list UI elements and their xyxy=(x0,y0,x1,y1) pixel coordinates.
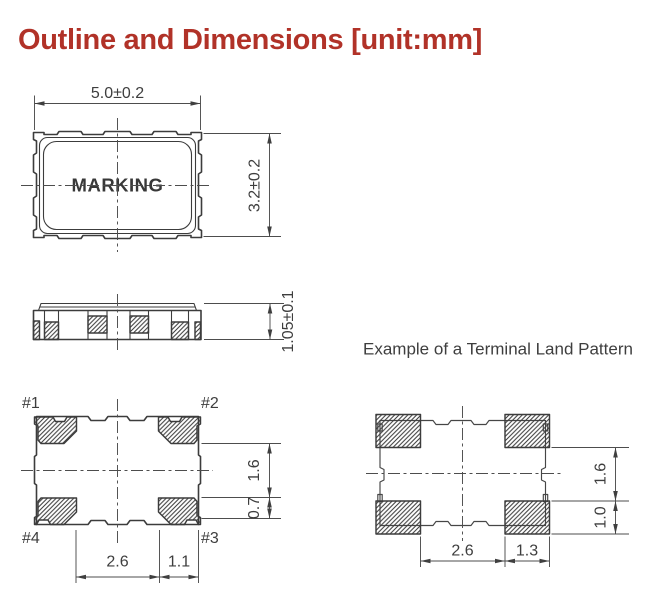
arrowhead xyxy=(613,524,618,534)
dimension-label-land-width: 1.3 xyxy=(516,543,538,560)
dimension-label-width: 5.0±0.2 xyxy=(91,85,144,102)
arrowhead xyxy=(421,559,431,564)
land-pad-3 xyxy=(505,501,550,534)
arrowhead xyxy=(150,575,160,580)
arrowhead xyxy=(613,491,618,501)
dimension-pad-pitch: 2.6 1.1 xyxy=(76,530,199,583)
arrowhead xyxy=(268,330,273,340)
pad-4 xyxy=(35,498,77,525)
arrowhead xyxy=(35,101,45,106)
arrowhead xyxy=(613,448,618,458)
dimension-label-pad-width: 1.1 xyxy=(168,554,190,571)
terminal-pad xyxy=(34,321,40,340)
arrowhead xyxy=(267,227,272,237)
pin1-label: #1 xyxy=(22,395,40,412)
arrowhead xyxy=(540,559,550,564)
dimension-thickness: 1.05±0.1 xyxy=(204,290,297,352)
terminal-pad xyxy=(88,316,107,333)
pin3-label: #3 xyxy=(201,530,219,547)
arrowhead xyxy=(613,501,618,511)
pad-2 xyxy=(159,417,201,444)
arrowhead xyxy=(76,575,86,580)
terminal-pad xyxy=(130,316,149,333)
arrowhead xyxy=(495,559,505,564)
land-pad-1 xyxy=(376,415,421,448)
pin4-label: #4 xyxy=(22,530,40,547)
arrowhead xyxy=(268,304,273,314)
pin2-label: #2 xyxy=(201,395,219,412)
land-pattern-caption: Example of a Terminal Land Pattern xyxy=(363,340,633,359)
land-pad-2 xyxy=(505,415,550,448)
dimension-label-pad-height: 0.7 xyxy=(246,497,263,519)
arrowhead xyxy=(267,498,272,508)
dimension-label-height: 3.2±0.2 xyxy=(247,159,264,212)
dimension-label-pitch: 2.6 xyxy=(106,554,128,571)
terminal-pad xyxy=(172,322,189,340)
outline-drawing: 5.0±0.2 MARKING 3.2±0.2 xyxy=(0,0,661,603)
arrowhead xyxy=(191,101,201,106)
bottom-view: #1 #2 #4 #3 1.6 0.7 xyxy=(21,395,281,583)
dimension-label-land-pitch: 2.6 xyxy=(451,543,473,560)
terminal-pad xyxy=(195,322,201,340)
dimension-land-pitch: 2.6 1.3 xyxy=(421,537,550,568)
dimension-label-gap-v: 1.6 xyxy=(246,459,263,481)
pad-3 xyxy=(159,498,201,525)
arrowhead xyxy=(505,559,515,564)
dimension-label-land-height: 1.0 xyxy=(593,506,610,528)
top-view: 5.0±0.2 MARKING 3.2±0.2 xyxy=(21,85,281,252)
dimension-label-land-gap-v: 1.6 xyxy=(593,463,610,485)
side-view: 1.05±0.1 xyxy=(34,290,298,352)
dimension-height: 3.2±0.2 xyxy=(204,134,282,237)
arrowhead xyxy=(267,134,272,144)
arrowhead xyxy=(189,575,199,580)
dimension-pad-gap-v: 1.6 0.7 xyxy=(202,444,282,520)
terminal-pad xyxy=(45,322,59,340)
arrowhead xyxy=(267,509,272,519)
land-pad-4 xyxy=(376,501,421,534)
pad-1 xyxy=(35,417,77,444)
land-pattern: Example of a Terminal Land Pattern 1.6 1… xyxy=(363,340,633,568)
dimension-label-thickness: 1.05±0.1 xyxy=(280,290,297,352)
arrowhead xyxy=(267,488,272,498)
arrowhead xyxy=(267,444,272,454)
dimension-land-gap-v: 1.6 1.0 xyxy=(552,448,630,535)
arrowhead xyxy=(160,575,170,580)
